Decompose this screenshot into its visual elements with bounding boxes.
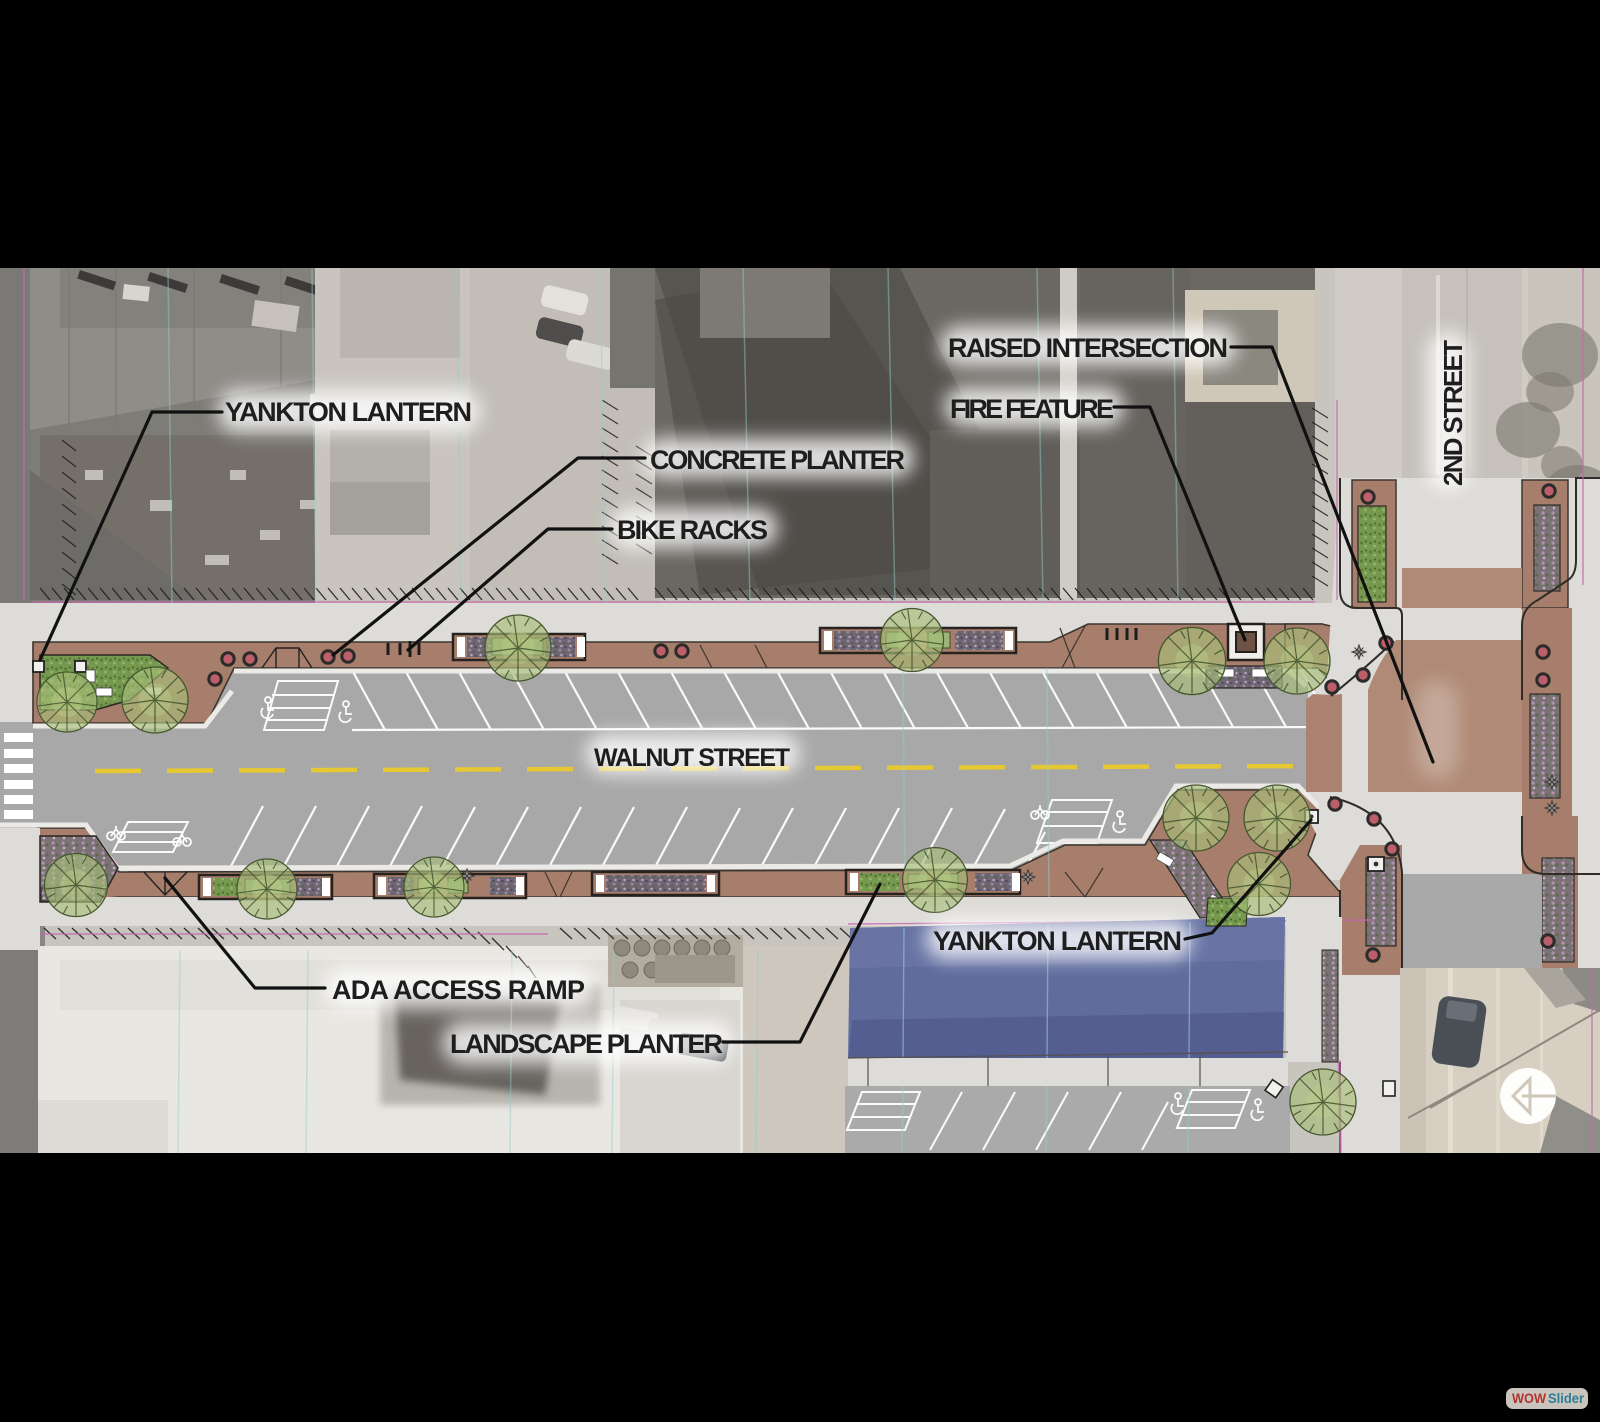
svg-text:YANKTON LANTERN: YANKTON LANTERN [933, 926, 1182, 956]
svg-text:Slider: Slider [1548, 1390, 1585, 1406]
svg-text:WOW: WOW [1512, 1390, 1547, 1406]
svg-text:2ND STREET: 2ND STREET [1438, 340, 1468, 486]
svg-text:BIKE RACKS: BIKE RACKS [617, 515, 768, 545]
svg-text:RAISED INTERSECTION: RAISED INTERSECTION [948, 333, 1228, 363]
svg-text:YANKTON LANTERN: YANKTON LANTERN [225, 397, 472, 427]
svg-text:WALNUT STREET: WALNUT STREET [594, 744, 790, 772]
svg-text:CONCRETE PLANTER: CONCRETE PLANTER [650, 445, 905, 475]
svg-text:LANDSCAPE PLANTER: LANDSCAPE PLANTER [450, 1029, 723, 1059]
svg-text:FIRE FEATURE: FIRE FEATURE [950, 394, 1114, 424]
svg-text:ADA ACCESS RAMP: ADA ACCESS RAMP [332, 975, 585, 1005]
